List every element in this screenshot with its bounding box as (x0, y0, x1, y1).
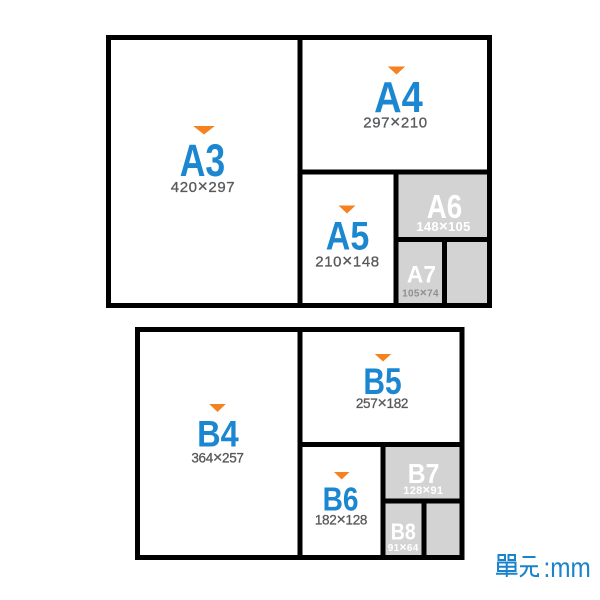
svg-text:420×297: 420×297 (171, 176, 235, 196)
svg-text::mm: :mm (544, 551, 591, 583)
svg-text:364×257: 364×257 (191, 450, 243, 467)
svg-text:128×91: 128×91 (403, 482, 443, 497)
svg-text:182×128: 182×128 (315, 512, 367, 529)
svg-text:A7: A7 (407, 261, 436, 288)
svg-text:297×210: 297×210 (363, 112, 427, 132)
svg-text:105×74: 105×74 (402, 286, 439, 300)
svg-text:148×105: 148×105 (416, 218, 470, 235)
svg-text:257×182: 257×182 (356, 395, 408, 412)
svg-text:210×148: 210×148 (315, 251, 379, 271)
svg-text:91×64: 91×64 (388, 540, 419, 554)
